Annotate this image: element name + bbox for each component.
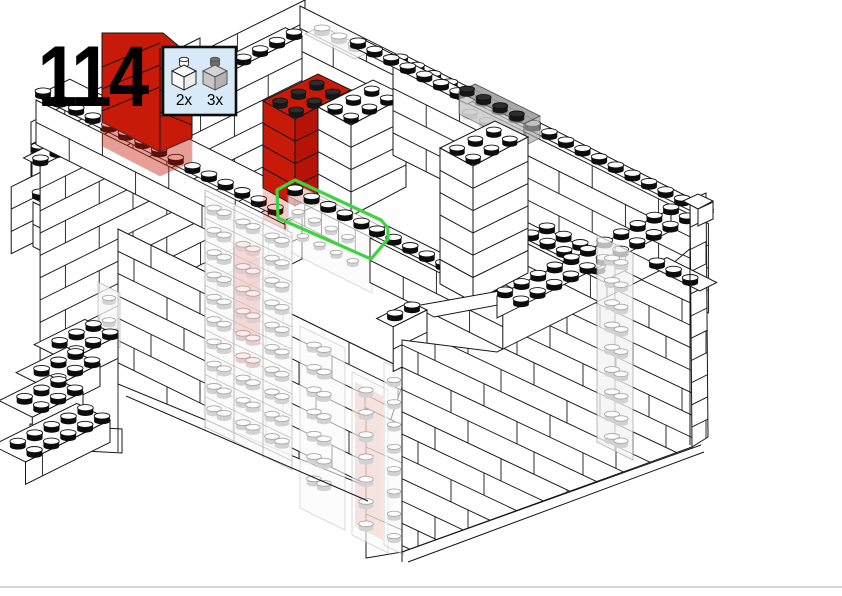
svg-text:3x: 3x xyxy=(207,92,224,109)
svg-text:2x: 2x xyxy=(176,92,193,109)
svg-text:114: 114 xyxy=(38,28,149,125)
